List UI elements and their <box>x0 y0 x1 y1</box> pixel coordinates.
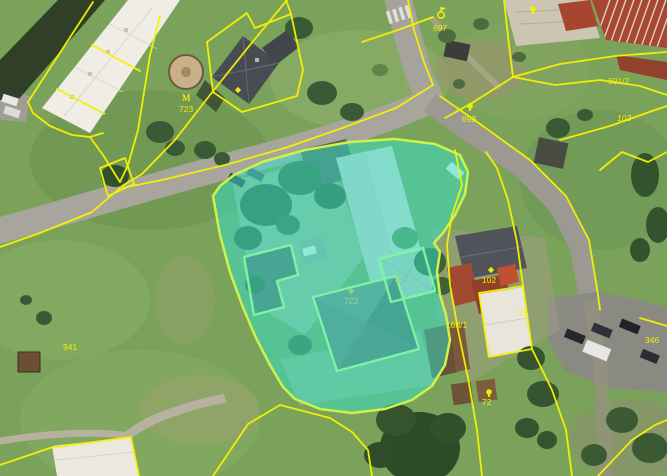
parcel-label-941: 941 <box>63 342 77 352</box>
parcel-label-691-2: 691/2 <box>608 76 630 86</box>
cadastral-orthophoto-canvas: M 723697693691/210310277108/194172722346 <box>0 0 667 476</box>
tree-m-symbol: M <box>182 93 191 103</box>
parcel-label-102: 102 <box>482 275 496 285</box>
parcel-label-77: 77 <box>518 308 528 318</box>
parcel-label-697: 697 <box>433 23 447 33</box>
playground-circle <box>169 55 203 89</box>
parcel-label-723: 723 <box>179 104 193 114</box>
map-viewport[interactable]: M 723697693691/210310277108/194172722346 <box>0 0 667 476</box>
parcel-label-72: 72 <box>482 397 492 407</box>
svg-text:M: M <box>182 93 191 103</box>
parcel-label-103: 103 <box>617 113 631 123</box>
parcel-label-108-1: 108/1 <box>446 320 468 330</box>
parcel-label-722: 722 <box>344 296 358 306</box>
parcel-label-693: 693 <box>462 114 476 124</box>
parcel-label-346: 346 <box>645 335 659 345</box>
